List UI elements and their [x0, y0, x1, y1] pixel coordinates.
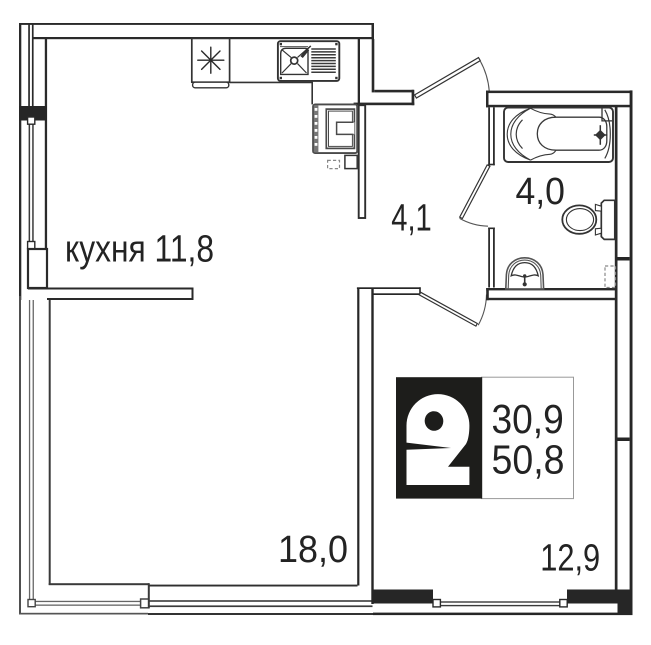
svg-text:50,8: 50,8 [492, 437, 565, 483]
svg-text:кухня 11,8: кухня 11,8 [65, 229, 214, 271]
svg-text:12,9: 12,9 [540, 537, 600, 579]
svg-text:4,0: 4,0 [515, 171, 565, 213]
svg-text:30,9: 30,9 [492, 396, 564, 442]
svg-text:4,1: 4,1 [391, 197, 432, 239]
svg-text:18,0: 18,0 [278, 529, 348, 571]
